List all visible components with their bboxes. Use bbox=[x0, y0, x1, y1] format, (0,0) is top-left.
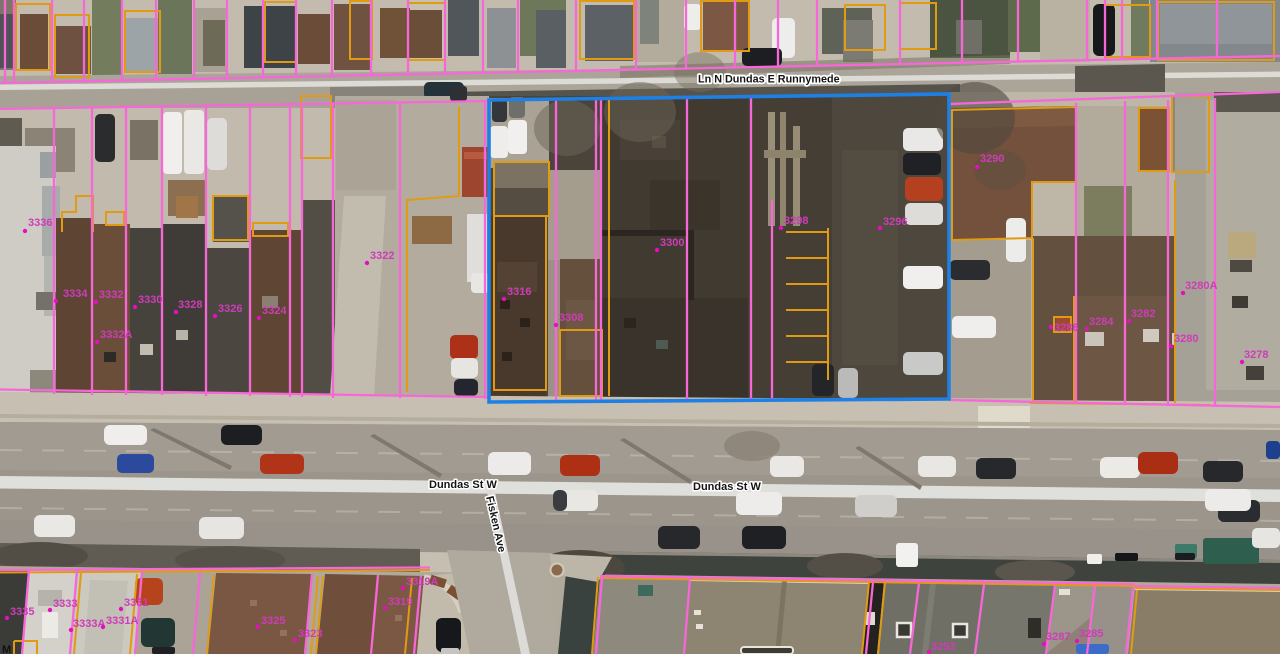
svg-text:3324: 3324 bbox=[262, 305, 287, 317]
svg-text:3333A: 3333A bbox=[73, 618, 105, 630]
svg-text:Dundas St W: Dundas St W bbox=[693, 481, 761, 493]
svg-text:3319: 3319 bbox=[388, 596, 412, 608]
svg-text:3290: 3290 bbox=[980, 153, 1004, 165]
svg-text:3284: 3284 bbox=[1089, 316, 1114, 328]
svg-text:3298: 3298 bbox=[784, 215, 808, 227]
svg-text:3323: 3323 bbox=[298, 628, 322, 640]
svg-text:3308: 3308 bbox=[559, 312, 583, 324]
svg-text:3336: 3336 bbox=[28, 217, 52, 229]
svg-text:3332: 3332 bbox=[99, 289, 123, 301]
svg-text:3285: 3285 bbox=[1079, 628, 1103, 640]
svg-text:3325: 3325 bbox=[261, 615, 285, 627]
svg-text:3322: 3322 bbox=[370, 250, 394, 262]
svg-text:3331A: 3331A bbox=[106, 615, 138, 627]
svg-text:3316: 3316 bbox=[507, 286, 531, 298]
svg-text:3328: 3328 bbox=[178, 299, 202, 311]
svg-text:3287: 3287 bbox=[1046, 631, 1070, 643]
svg-text:3300: 3300 bbox=[660, 237, 684, 249]
svg-text:3280A: 3280A bbox=[1185, 280, 1217, 292]
svg-text:Dundas St W: Dundas St W bbox=[429, 479, 497, 491]
svg-text:3280: 3280 bbox=[1174, 333, 1198, 345]
svg-text:3334: 3334 bbox=[63, 288, 88, 300]
svg-text:M: M bbox=[2, 644, 11, 654]
svg-text:3286: 3286 bbox=[1054, 322, 1078, 334]
svg-text:3331: 3331 bbox=[124, 597, 148, 609]
svg-text:3335: 3335 bbox=[10, 606, 34, 618]
svg-text:3330: 3330 bbox=[138, 294, 162, 306]
svg-text:3319A: 3319A bbox=[406, 576, 438, 588]
svg-text:3332A: 3332A bbox=[100, 329, 132, 341]
svg-text:3333: 3333 bbox=[53, 598, 77, 610]
svg-text:3326: 3326 bbox=[218, 303, 242, 315]
svg-text:Ln N Dundas E Runnymede: Ln N Dundas E Runnymede bbox=[698, 74, 840, 86]
svg-text:3278: 3278 bbox=[1244, 349, 1268, 361]
svg-text:3293: 3293 bbox=[931, 641, 955, 653]
svg-text:3282: 3282 bbox=[1131, 308, 1155, 320]
svg-text:3296: 3296 bbox=[883, 216, 907, 228]
